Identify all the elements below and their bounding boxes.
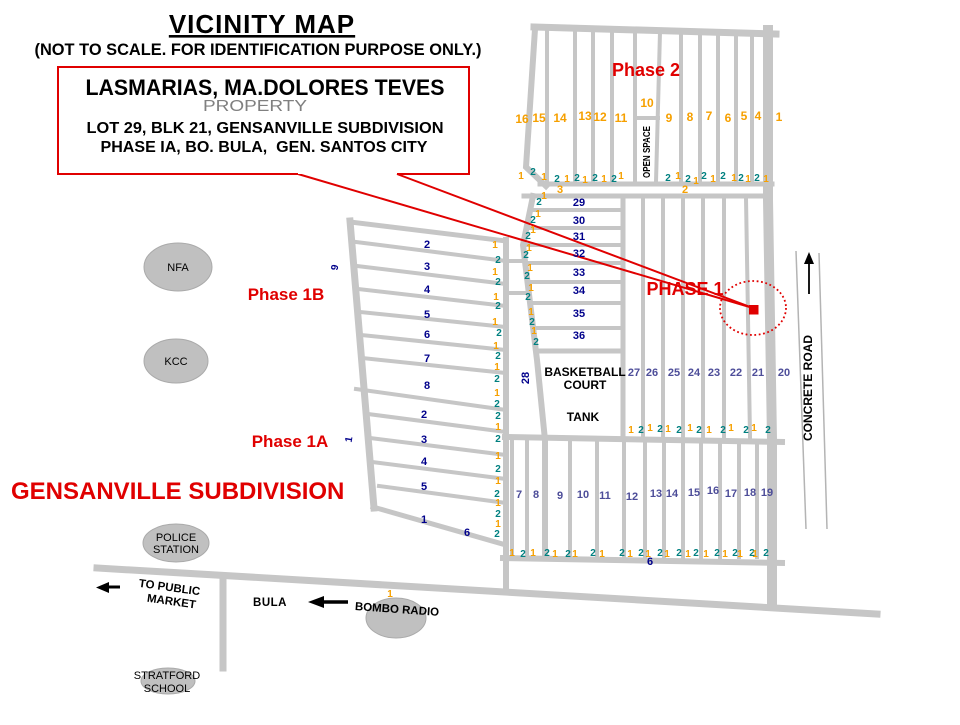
svg-text:KCC: KCC: [164, 356, 187, 368]
svg-text:8: 8: [424, 380, 430, 392]
svg-text:2: 2: [496, 328, 502, 339]
svg-text:VICINITY MAP: VICINITY MAP: [169, 9, 355, 39]
svg-text:1: 1: [601, 174, 607, 185]
svg-text:24: 24: [688, 367, 701, 379]
svg-text:2: 2: [590, 548, 596, 559]
svg-text:2: 2: [536, 197, 542, 208]
svg-text:1: 1: [763, 174, 769, 185]
svg-text:STRATFORD: STRATFORD: [134, 670, 200, 682]
svg-text:1: 1: [710, 174, 716, 185]
svg-text:1: 1: [509, 548, 515, 559]
svg-text:2: 2: [574, 173, 580, 184]
svg-text:1: 1: [647, 423, 653, 434]
svg-text:BASKETBALL: BASKETBALL: [544, 365, 625, 379]
svg-text:1: 1: [494, 388, 500, 399]
svg-text:2: 2: [494, 529, 500, 540]
svg-text:TANK: TANK: [567, 410, 600, 424]
svg-text:1: 1: [541, 191, 547, 202]
svg-text:26: 26: [646, 367, 658, 379]
svg-text:1: 1: [687, 423, 693, 434]
svg-text:2: 2: [523, 250, 529, 261]
svg-text:16: 16: [515, 112, 529, 126]
svg-text:29: 29: [573, 197, 585, 209]
svg-text:4: 4: [421, 456, 428, 468]
svg-text:1: 1: [572, 549, 578, 560]
svg-text:5: 5: [421, 481, 427, 493]
svg-text:1: 1: [675, 171, 681, 182]
svg-text:19: 19: [761, 487, 773, 499]
svg-text:1: 1: [737, 549, 743, 560]
svg-text:30: 30: [573, 215, 585, 227]
svg-text:36: 36: [573, 330, 585, 342]
svg-text:1: 1: [706, 425, 712, 436]
svg-text:2: 2: [533, 337, 539, 348]
svg-text:11: 11: [599, 490, 611, 502]
svg-text:2: 2: [611, 174, 617, 185]
svg-text:SCHOOL: SCHOOL: [144, 683, 190, 695]
svg-text:8: 8: [533, 489, 539, 501]
svg-text:2: 2: [565, 549, 571, 560]
svg-text:1: 1: [492, 317, 498, 328]
svg-text:7: 7: [424, 353, 430, 365]
svg-text:18: 18: [744, 487, 756, 499]
svg-text:STATION: STATION: [153, 544, 199, 556]
svg-text:2: 2: [743, 425, 749, 436]
svg-text:1: 1: [599, 549, 605, 560]
svg-text:Phase 1B: Phase 1B: [248, 285, 325, 304]
svg-text:2: 2: [525, 292, 531, 303]
svg-text:LASMARIAS, MA.DOLORES TEVES: LASMARIAS, MA.DOLORES TEVES: [86, 75, 445, 100]
svg-text:1: 1: [745, 174, 751, 185]
svg-text:25: 25: [668, 367, 680, 379]
svg-text:2: 2: [665, 173, 671, 184]
svg-text:1: 1: [628, 425, 634, 436]
svg-text:2: 2: [701, 171, 707, 182]
svg-text:1: 1: [535, 209, 541, 220]
svg-text:1: 1: [728, 423, 734, 434]
svg-text:1: 1: [752, 549, 758, 560]
svg-text:27: 27: [628, 367, 640, 379]
svg-text:1: 1: [495, 498, 501, 509]
svg-text:1: 1: [693, 176, 699, 187]
svg-text:2: 2: [494, 374, 500, 385]
svg-text:9: 9: [666, 111, 673, 125]
svg-text:1: 1: [421, 514, 427, 526]
svg-text:2: 2: [544, 548, 550, 559]
svg-text:2: 2: [525, 231, 531, 242]
svg-text:34: 34: [573, 285, 586, 297]
svg-text:10: 10: [577, 489, 589, 501]
svg-text:15: 15: [688, 487, 700, 499]
svg-text:33: 33: [573, 267, 585, 279]
svg-text:2: 2: [495, 301, 501, 312]
svg-text:PHASE IA, BO. BULA, GEN. SANT: PHASE IA, BO. BULA, GEN. SANTOS CITY: [101, 139, 428, 156]
svg-text:Phase 2: Phase 2: [612, 60, 680, 80]
svg-text:6: 6: [424, 329, 430, 341]
svg-text:31: 31: [573, 231, 585, 243]
svg-text:2: 2: [619, 548, 625, 559]
svg-text:2: 2: [754, 173, 760, 184]
svg-text:BULA: BULA: [253, 597, 287, 609]
svg-text:OPEN SPACE: OPEN SPACE: [642, 126, 653, 178]
svg-text:1: 1: [703, 549, 709, 560]
svg-text:22: 22: [730, 367, 742, 379]
svg-text:PHASE 1: PHASE 1: [646, 279, 723, 299]
svg-text:5: 5: [424, 309, 430, 321]
svg-text:POLICE: POLICE: [156, 532, 196, 544]
svg-text:1: 1: [618, 171, 624, 182]
svg-text:5: 5: [741, 109, 748, 123]
svg-text:2: 2: [495, 411, 501, 422]
svg-text:2: 2: [495, 277, 501, 288]
svg-text:20: 20: [778, 367, 790, 379]
svg-text:1: 1: [495, 422, 501, 433]
svg-text:1: 1: [685, 549, 691, 560]
svg-text:35: 35: [573, 308, 585, 320]
svg-text:6: 6: [464, 527, 470, 539]
svg-text:2: 2: [592, 173, 598, 184]
svg-text:1: 1: [582, 175, 588, 186]
svg-text:(NOT TO SCALE. FOR IDENTIFICAT: (NOT TO SCALE. FOR IDENTIFICATION PURPOS…: [35, 41, 482, 59]
svg-text:2: 2: [763, 548, 769, 559]
svg-text:2: 2: [696, 425, 702, 436]
svg-text:1: 1: [541, 172, 547, 183]
svg-text:1: 1: [731, 173, 737, 184]
svg-text:2: 2: [720, 171, 726, 182]
svg-text:2: 2: [638, 548, 644, 559]
svg-text:17: 17: [725, 488, 737, 500]
svg-text:13: 13: [650, 488, 662, 500]
svg-text:1: 1: [776, 110, 783, 124]
svg-text:2: 2: [714, 548, 720, 559]
svg-text:1: 1: [518, 171, 524, 182]
svg-text:2: 2: [524, 271, 530, 282]
svg-text:2: 2: [494, 399, 500, 410]
svg-text:1: 1: [495, 451, 501, 462]
svg-text:12: 12: [626, 491, 638, 503]
svg-text:2: 2: [738, 173, 744, 184]
svg-text:3: 3: [557, 184, 563, 196]
svg-text:1: 1: [492, 240, 498, 251]
svg-text:23: 23: [708, 367, 720, 379]
svg-text:32: 32: [573, 248, 585, 260]
svg-text:15: 15: [532, 111, 546, 125]
svg-text:9: 9: [557, 490, 563, 502]
svg-text:1: 1: [552, 549, 558, 560]
svg-text:1: 1: [627, 549, 633, 560]
svg-text:2: 2: [421, 409, 427, 421]
svg-text:28: 28: [520, 372, 532, 384]
svg-text:1: 1: [722, 549, 728, 560]
svg-text:2: 2: [530, 167, 536, 178]
svg-text:2: 2: [424, 239, 430, 251]
svg-text:16: 16: [707, 485, 719, 497]
svg-text:1: 1: [531, 326, 537, 337]
svg-text:PROPERTY: PROPERTY: [203, 98, 307, 115]
svg-text:2: 2: [495, 464, 501, 475]
svg-text:Phase 1A: Phase 1A: [252, 432, 329, 451]
svg-text:8: 8: [687, 110, 694, 124]
svg-text:14: 14: [553, 111, 567, 125]
svg-text:1: 1: [530, 225, 536, 236]
svg-text:NFA: NFA: [167, 262, 189, 274]
svg-text:4: 4: [755, 109, 762, 123]
svg-text:6: 6: [725, 111, 732, 125]
svg-text:CONCRETE ROAD: CONCRETE ROAD: [801, 335, 815, 441]
svg-text:1: 1: [564, 174, 570, 185]
svg-text:1: 1: [387, 589, 393, 600]
svg-text:2: 2: [520, 549, 526, 560]
svg-text:2: 2: [693, 548, 699, 559]
svg-text:LOT 29, BLK 21, GENSANVILLE SU: LOT 29, BLK 21, GENSANVILLE SUBDIVISION: [87, 120, 444, 137]
svg-text:4: 4: [424, 284, 431, 296]
svg-text:6: 6: [647, 556, 653, 568]
svg-text:2: 2: [495, 351, 501, 362]
svg-text:3: 3: [424, 261, 430, 273]
svg-text:7: 7: [516, 489, 522, 501]
svg-text:1: 1: [495, 476, 501, 487]
svg-text:1: 1: [530, 548, 536, 559]
svg-text:2: 2: [720, 425, 726, 436]
svg-text:GENSANVILLE SUBDIVISION: GENSANVILLE SUBDIVISION: [11, 478, 344, 505]
svg-text:2: 2: [765, 425, 771, 436]
svg-text:1: 1: [751, 423, 757, 434]
svg-text:11: 11: [615, 111, 628, 125]
svg-text:COURT: COURT: [564, 378, 607, 392]
svg-text:1: 1: [494, 362, 500, 373]
svg-text:10: 10: [640, 96, 654, 110]
svg-text:2: 2: [676, 548, 682, 559]
svg-text:21: 21: [752, 367, 764, 379]
svg-text:2: 2: [682, 184, 688, 196]
svg-text:2: 2: [676, 425, 682, 436]
svg-text:12: 12: [593, 110, 607, 124]
svg-text:7: 7: [706, 109, 713, 123]
svg-text:1: 1: [664, 549, 670, 560]
svg-text:13: 13: [578, 109, 592, 123]
svg-text:2: 2: [495, 434, 501, 445]
svg-text:14: 14: [666, 488, 679, 500]
svg-text:3: 3: [421, 434, 427, 446]
svg-text:2: 2: [495, 255, 501, 266]
svg-text:2: 2: [657, 548, 663, 559]
svg-text:2: 2: [657, 424, 663, 435]
svg-text:1: 1: [665, 424, 671, 435]
svg-text:2: 2: [638, 425, 644, 436]
